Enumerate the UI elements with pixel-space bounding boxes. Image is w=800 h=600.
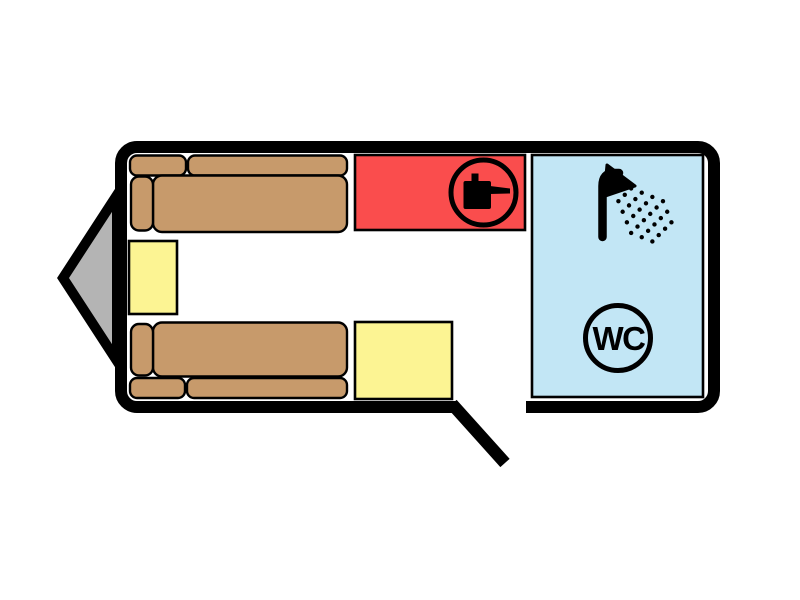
- dinette-table: [355, 322, 452, 399]
- floorplan-stage: WC: [0, 0, 800, 600]
- pot-body: [464, 181, 492, 209]
- sofa-top: [130, 156, 347, 233]
- sofa-bottom: [130, 323, 347, 399]
- side-table: [129, 241, 177, 314]
- wc-label: WC: [593, 320, 646, 357]
- sofa-bottom-armrest: [131, 324, 153, 376]
- pot-knob: [472, 174, 479, 182]
- sofa-top-backrest-right: [188, 156, 347, 176]
- sofa-top-backrest-left: [130, 156, 186, 176]
- hitch-triangle: [63, 195, 117, 361]
- sofa-top-seat: [153, 176, 347, 233]
- floorplan-canvas: WC: [0, 0, 800, 600]
- sofa-bottom-backrest-right: [187, 378, 347, 398]
- sofa-bottom-backrest-left: [130, 378, 185, 398]
- sofa-bottom-seat: [153, 323, 347, 377]
- sofa-top-armrest: [131, 177, 153, 231]
